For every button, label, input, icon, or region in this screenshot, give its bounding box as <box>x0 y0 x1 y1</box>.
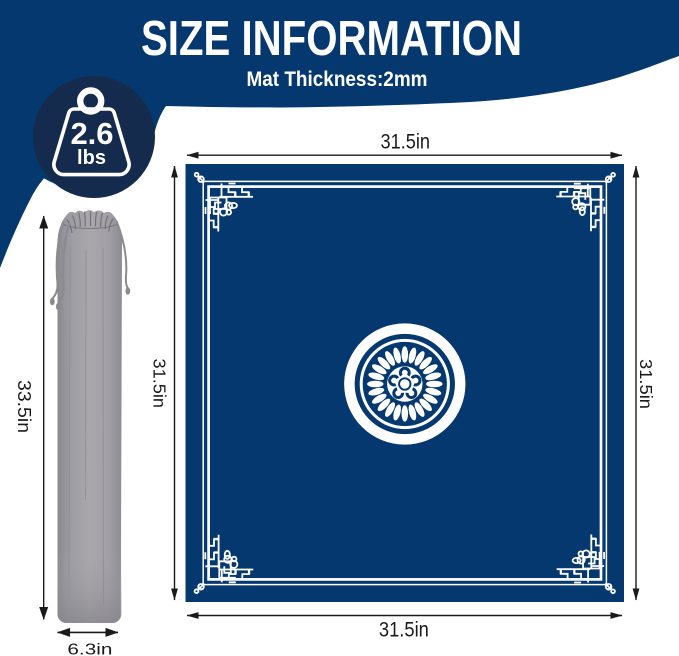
svg-text:31.5in: 31.5in <box>149 359 169 409</box>
svg-text:6.3in: 6.3in <box>67 642 112 656</box>
svg-text:31.5in: 31.5in <box>636 359 656 409</box>
svg-text:Mat Thickness:2mm: Mat Thickness:2mm <box>247 68 428 91</box>
svg-text:31.5in: 31.5in <box>381 130 431 154</box>
svg-text:SIZE INFORMATION: SIZE INFORMATION <box>141 12 522 66</box>
svg-text:31.5in: 31.5in <box>379 617 429 641</box>
svg-text:lbs: lbs <box>77 147 106 169</box>
svg-text:2.6: 2.6 <box>70 116 113 151</box>
svg-text:33.5in: 33.5in <box>14 380 34 433</box>
